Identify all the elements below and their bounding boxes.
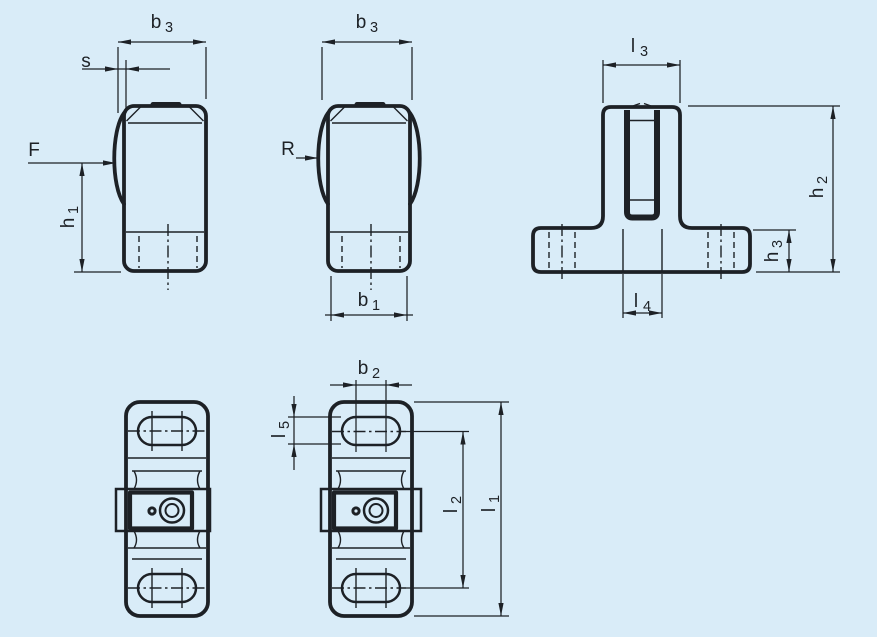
label-subscript: 3 xyxy=(640,44,648,60)
label-base: b xyxy=(151,12,162,33)
label-subscript: 4 xyxy=(643,299,651,315)
label-base: h xyxy=(762,252,783,263)
label-subscript: 3 xyxy=(165,20,173,36)
screw-dot-center xyxy=(354,509,357,512)
label-subscript: 3 xyxy=(370,20,378,36)
technical-drawing: b 3 s F h 1 xyxy=(0,0,877,637)
label-base: s xyxy=(81,51,91,72)
dim-label-r: R xyxy=(281,139,295,160)
label-subscript: 2 xyxy=(449,496,465,504)
label-base: l xyxy=(479,508,500,512)
label-base: h xyxy=(58,218,79,229)
label-subscript: 1 xyxy=(372,298,380,314)
label-base: R xyxy=(281,139,295,160)
dim-label-f: F xyxy=(28,140,40,161)
screw-dot-center xyxy=(150,509,153,512)
dim-label-s: s xyxy=(81,51,91,72)
label-base: l xyxy=(631,36,635,57)
label-subscript: 1 xyxy=(66,206,82,214)
label-base: b xyxy=(358,358,369,379)
label-subscript: 2 xyxy=(815,176,831,184)
label-base: l xyxy=(441,509,462,513)
label-subscript: 3 xyxy=(770,240,786,248)
label-subscript: 1 xyxy=(487,495,503,503)
label-base: b xyxy=(356,12,367,33)
label-base: F xyxy=(28,140,40,161)
drawing-canvas: b 3 s F h 1 xyxy=(0,0,877,637)
label-base: l xyxy=(269,434,290,438)
background xyxy=(0,0,877,637)
label-subscript: 5 xyxy=(277,421,293,429)
label-base: h xyxy=(807,188,828,199)
label-base: l xyxy=(634,291,638,312)
label-subscript: 2 xyxy=(372,366,380,382)
label-base: b xyxy=(358,290,369,311)
